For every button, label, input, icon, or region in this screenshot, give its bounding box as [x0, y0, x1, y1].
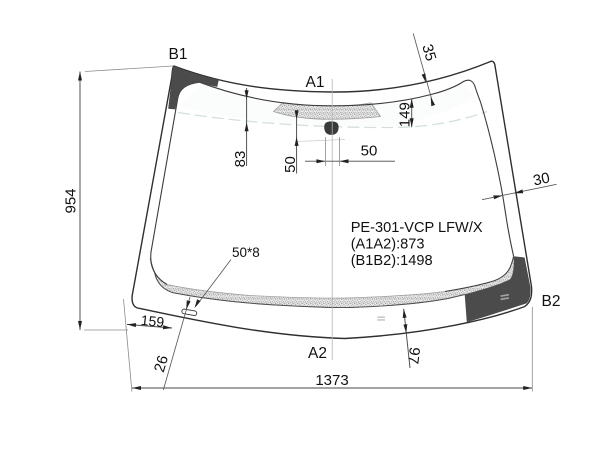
svg-text:30: 30: [532, 169, 552, 189]
svg-text:A1: A1: [306, 74, 325, 91]
svg-text:PE-301-VCP LFW/X: PE-301-VCP LFW/X: [351, 220, 483, 236]
svg-text:50*8: 50*8: [232, 245, 260, 260]
svg-text:B2: B2: [542, 293, 561, 310]
svg-text:149: 149: [397, 102, 414, 127]
svg-text:1373: 1373: [315, 372, 348, 389]
svg-text:83: 83: [232, 151, 249, 168]
svg-text:50: 50: [361, 143, 378, 160]
svg-text:97: 97: [404, 346, 423, 365]
svg-text:(B1B2):1498: (B1B2):1498: [351, 253, 433, 269]
svg-text:159: 159: [140, 312, 165, 330]
svg-text:954: 954: [62, 188, 79, 213]
svg-text:B1: B1: [169, 46, 188, 63]
svg-text:50: 50: [282, 156, 299, 173]
svg-text:(A1A2):873: (A1A2):873: [351, 237, 425, 253]
svg-text:A2: A2: [308, 345, 327, 362]
